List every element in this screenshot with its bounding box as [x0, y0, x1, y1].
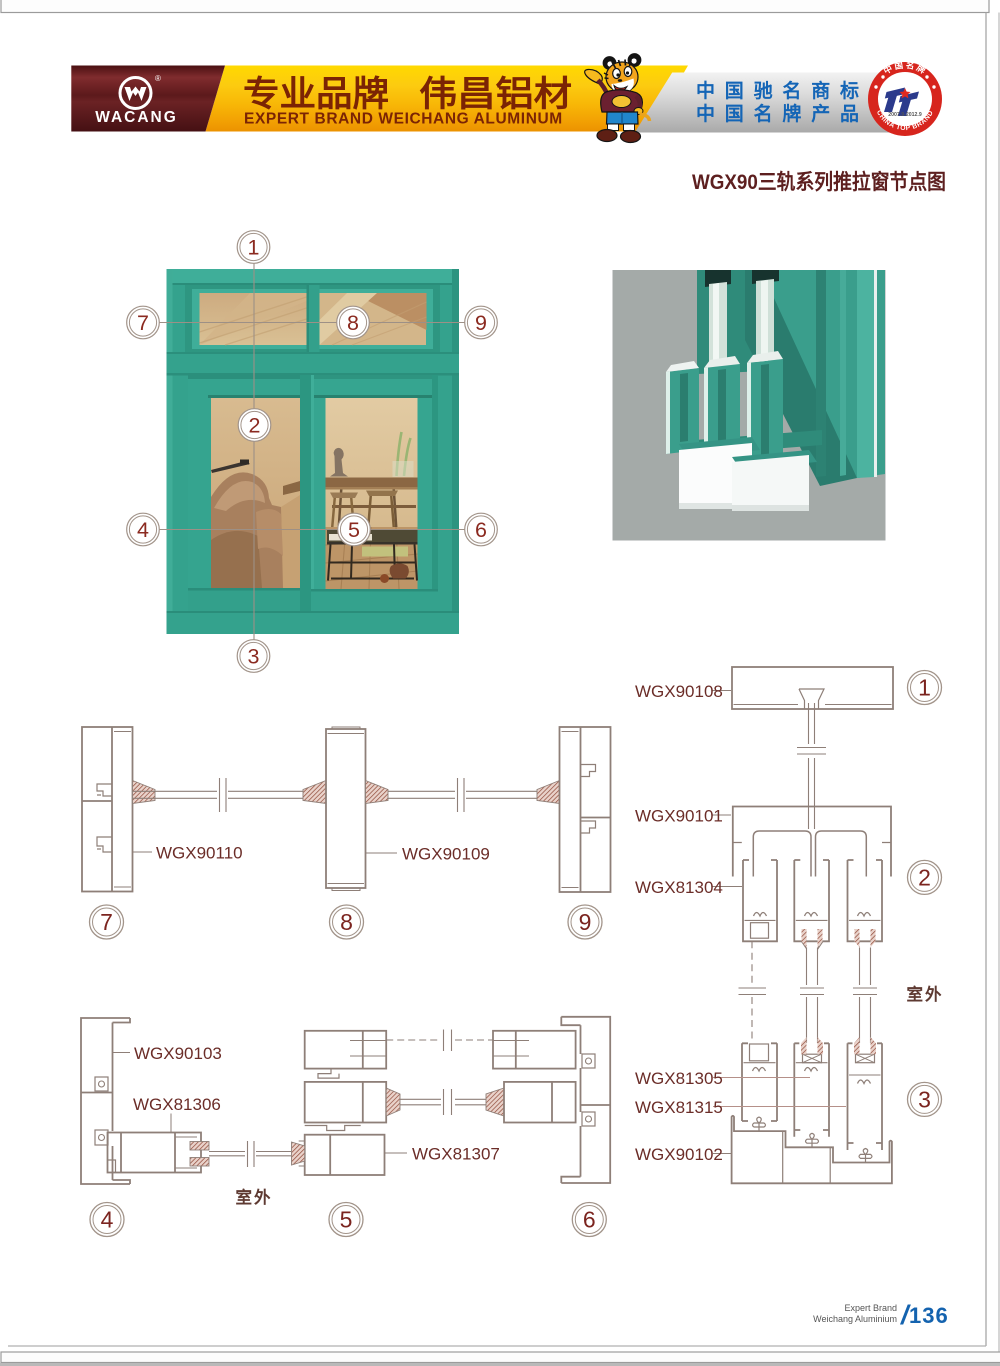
svg-text:5: 5 — [340, 1207, 353, 1233]
svg-text:WGX81307: WGX81307 — [412, 1145, 500, 1164]
svg-text:WGX90101: WGX90101 — [635, 807, 723, 826]
svg-text:8: 8 — [340, 909, 353, 935]
svg-text:2: 2 — [249, 414, 261, 438]
svg-text:7: 7 — [100, 909, 113, 935]
svg-text:专业品牌: 专业品牌 — [243, 75, 389, 114]
svg-text:®: ® — [155, 74, 161, 83]
svg-text:4: 4 — [101, 1207, 114, 1233]
svg-text:WACANG: WACANG — [95, 109, 178, 126]
svg-text:3: 3 — [918, 1086, 931, 1112]
svg-text:9: 9 — [579, 909, 592, 935]
svg-text:1: 1 — [918, 675, 931, 701]
svg-text:WGX90108: WGX90108 — [635, 682, 723, 701]
svg-text:室外: 室外 — [907, 984, 944, 1004]
svg-text:室外: 室外 — [236, 1187, 273, 1207]
svg-text:Weichang Aluminium: Weichang Aluminium — [813, 1314, 897, 1324]
svg-text:8: 8 — [347, 311, 359, 335]
svg-text:WGX90三轨系列推拉窗节点图: WGX90三轨系列推拉窗节点图 — [692, 170, 946, 194]
svg-text:WGX81305: WGX81305 — [635, 1069, 723, 1088]
svg-text:WGX81315: WGX81315 — [635, 1098, 723, 1117]
svg-text:6: 6 — [475, 518, 487, 542]
svg-text:伟昌铝材: 伟昌铝材 — [419, 75, 572, 114]
svg-text:WGX90103: WGX90103 — [134, 1044, 222, 1063]
svg-text:2: 2 — [918, 864, 931, 890]
svg-text:4: 4 — [137, 518, 149, 542]
svg-text:5: 5 — [348, 518, 360, 542]
svg-text:WGX81306: WGX81306 — [133, 1095, 221, 1114]
svg-text:1: 1 — [248, 236, 260, 260]
svg-text:136: 136 — [909, 1303, 949, 1328]
svg-text:WGX90110: WGX90110 — [156, 844, 243, 863]
svg-text:WGX81304: WGX81304 — [635, 878, 723, 897]
svg-text:WGX90102: WGX90102 — [635, 1145, 723, 1164]
svg-text:3: 3 — [248, 645, 260, 669]
svg-text:Expert Brand: Expert Brand — [844, 1303, 897, 1313]
svg-text:6: 6 — [583, 1207, 596, 1233]
svg-text:WGX90109: WGX90109 — [402, 845, 490, 864]
svg-text:7: 7 — [137, 311, 149, 335]
svg-text:9: 9 — [475, 311, 487, 335]
svg-text:2007.9-2012.9: 2007.9-2012.9 — [888, 112, 922, 118]
svg-text:EXPERT BRAND WEICHANG ALUMINUM: EXPERT BRAND WEICHANG ALUMINUM — [244, 111, 563, 128]
